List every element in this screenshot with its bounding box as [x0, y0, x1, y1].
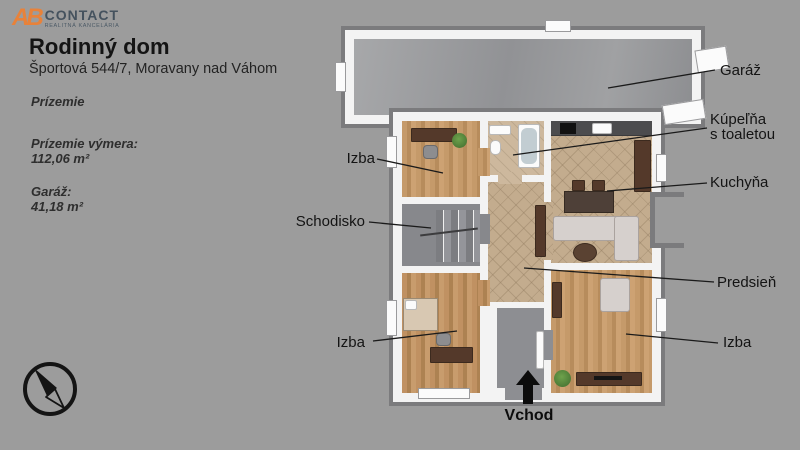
- stair-treads: [436, 210, 480, 262]
- tv: [594, 376, 622, 380]
- window: [386, 300, 397, 336]
- bathroom-door-opening: [498, 172, 522, 184]
- kitchen-cabinet: [634, 140, 651, 192]
- label-bathroom: Kúpeľňa s toaletou: [710, 112, 775, 142]
- garage-window: [335, 62, 346, 92]
- property-address: Športová 544/7, Moravany nad Váhom: [29, 61, 277, 77]
- label-garage: Garáž: [720, 62, 761, 79]
- window: [418, 388, 470, 399]
- floorplan-slide: AB CONTACT REALITNÁ KANCELÁRIA Rodinný d…: [0, 0, 800, 450]
- bed-pillow: [405, 300, 417, 310]
- logo-tagline: REALITNÁ KANCELÁRIA: [45, 23, 120, 29]
- agency-logo: AB CONTACT REALITNÁ KANCELÁRIA: [12, 7, 119, 29]
- office-chair: [423, 145, 438, 159]
- compass-icon: [25, 364, 75, 414]
- floor-area-value: 112,06 m²: [31, 151, 138, 166]
- dining-table: [564, 191, 614, 213]
- exterior-nook: [650, 192, 684, 248]
- label-room-bottom-left: Izba: [320, 334, 365, 351]
- label-entrance: Vchod: [504, 407, 554, 425]
- page-title: Rodinný dom: [29, 34, 170, 60]
- stove: [560, 123, 576, 134]
- window: [386, 136, 397, 168]
- plant: [554, 370, 571, 387]
- window: [656, 154, 667, 182]
- plant: [452, 133, 467, 148]
- desk-chair: [436, 333, 451, 346]
- room-top-left-door-opening: [478, 148, 490, 176]
- label-hallway: Predsieň: [717, 274, 776, 291]
- logo-wordmark: CONTACT: [45, 9, 120, 22]
- floor-area-label: Prízemie výmera:: [31, 136, 138, 151]
- garage-vent: [545, 20, 571, 32]
- writing-desk: [430, 347, 473, 363]
- logo-ab-mark: AB: [12, 7, 41, 29]
- label-room-top-left: Izba: [330, 150, 375, 167]
- window: [656, 298, 667, 332]
- floor-name: Prízemie: [31, 94, 84, 109]
- bathtub-basin: [521, 128, 537, 164]
- dining-chair: [572, 180, 585, 191]
- label-kitchen: Kuchyňa: [710, 174, 768, 191]
- area-details: Prízemie výmera: 112,06 m² Garáž: 41,18 …: [31, 136, 138, 232]
- toilet: [490, 140, 501, 155]
- corner-sofa-side: [614, 216, 639, 261]
- bathroom-sink: [489, 125, 511, 135]
- entrance-door-opening: [505, 384, 542, 400]
- garage-area-label: Garáž:: [31, 184, 138, 199]
- armchair: [600, 278, 630, 312]
- coffee-table: [573, 243, 597, 262]
- desk: [411, 128, 457, 142]
- entrance-door-panel: [536, 331, 544, 369]
- label-room-right: Izba: [723, 334, 751, 351]
- garage-room: [345, 30, 701, 124]
- kitchen-sink: [592, 123, 612, 134]
- hall-bench: [535, 205, 546, 257]
- shelf: [552, 282, 562, 318]
- dining-chair: [592, 180, 605, 191]
- room-bottom-left-door-opening: [478, 280, 490, 306]
- garage-area-value: 41,18 m²: [31, 199, 138, 214]
- label-stairs: Schodisko: [295, 213, 365, 230]
